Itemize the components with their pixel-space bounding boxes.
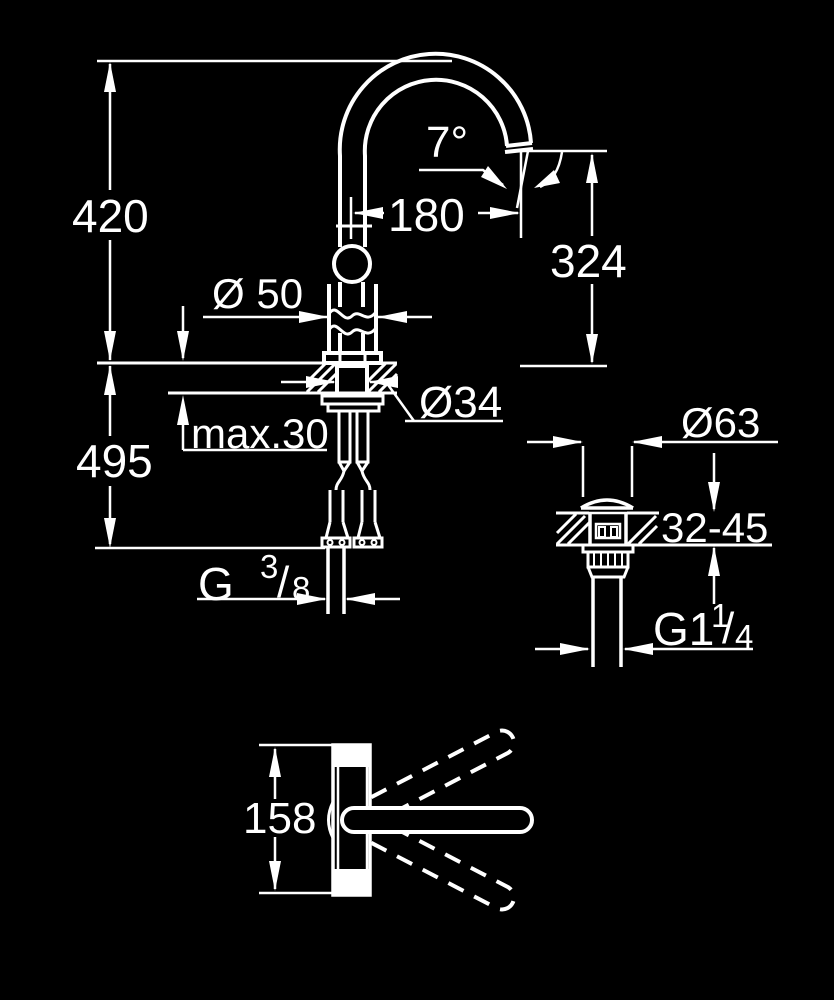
dim-swivel-width: 158 <box>243 794 316 843</box>
mounting-shank <box>337 366 367 395</box>
dim-spout-reach: 180 <box>388 189 465 241</box>
svg-text:4: 4 <box>735 618 753 655</box>
svg-text:3: 3 <box>260 548 278 585</box>
pipe-break-symbol <box>329 310 376 318</box>
svg-text:/: / <box>277 558 290 607</box>
pipe-break-symbol <box>329 326 376 334</box>
dim-drain-deck-range: 32-45 <box>661 504 768 551</box>
dim-max-deck-thickness: max.30 <box>191 410 329 457</box>
drawing-canvas: 420 495 Ø 50 max.30 Ø34 180 7° 324 Ø63 3… <box>0 0 834 1000</box>
dim-below-counter-height: 495 <box>76 435 153 487</box>
handle-ball <box>334 246 370 282</box>
dim-spout-angle: 7° <box>426 118 468 167</box>
spout-top-view <box>342 808 532 832</box>
dim-drain-flange-diameter: Ø63 <box>681 399 760 446</box>
dim-body-diameter: Ø 50 <box>212 270 303 317</box>
svg-text:/: / <box>722 604 735 653</box>
svg-text:G: G <box>198 558 234 610</box>
dim-supply-thread: G 3 / 8 <box>198 548 310 610</box>
dim-spout-height: 420 <box>72 190 149 242</box>
dimension-arrows <box>104 62 598 548</box>
hatch-line <box>557 514 576 533</box>
hatch-line <box>568 522 590 544</box>
dim-drain-thread: G1 1 / 4 <box>653 597 753 655</box>
dim-shank-diameter: Ø34 <box>419 378 502 427</box>
outlet-tilt-line <box>517 151 528 208</box>
svg-text:8: 8 <box>292 570 310 607</box>
spout-mouth <box>506 143 532 146</box>
dim-outlet-height: 324 <box>550 235 627 287</box>
faucet-dimension-drawing: 420 495 Ø 50 max.30 Ø34 180 7° 324 Ø63 3… <box>0 0 834 1000</box>
fixing-nut <box>328 404 379 411</box>
svg-text:G1: G1 <box>653 603 714 655</box>
